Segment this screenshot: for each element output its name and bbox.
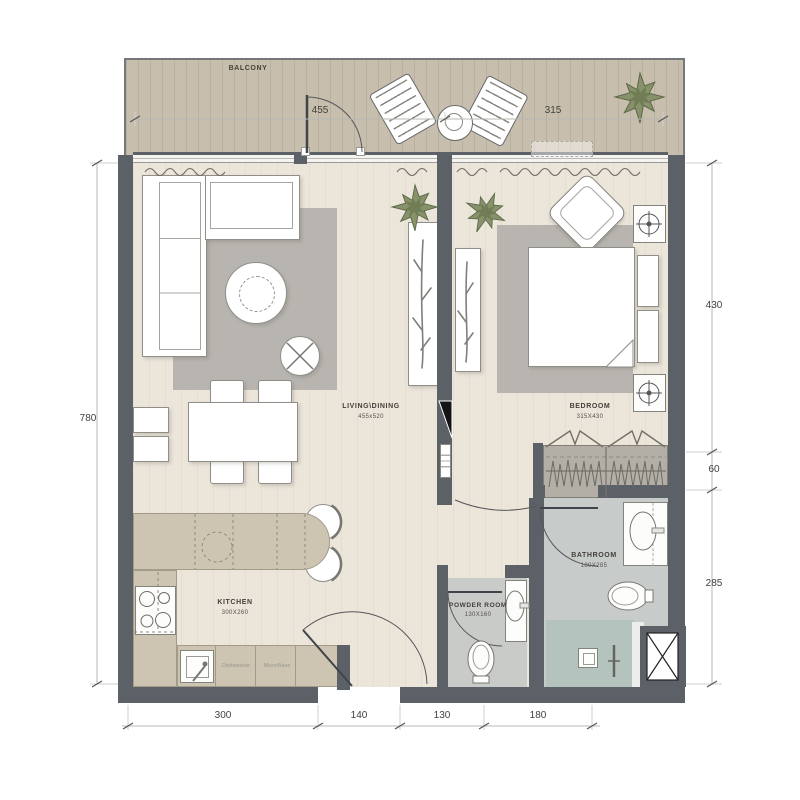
room-size: 455x520 bbox=[321, 413, 421, 422]
balcony-table bbox=[437, 105, 473, 141]
dim-bottom-300: 300 bbox=[203, 710, 243, 721]
dim-left-780: 780 bbox=[68, 413, 108, 424]
room-size: 300X260 bbox=[185, 609, 285, 618]
wall-right bbox=[668, 155, 685, 703]
microwave-label: MicroWave bbox=[247, 663, 307, 669]
powder-west-wall bbox=[437, 565, 448, 687]
bed bbox=[528, 247, 635, 367]
dim-bottom-180: 180 bbox=[518, 710, 558, 721]
wall-bottom-right bbox=[400, 687, 685, 703]
wall-bottom-left bbox=[118, 687, 318, 703]
room-size: 315X430 bbox=[540, 413, 640, 422]
room-name: POWDER ROOM bbox=[428, 601, 528, 611]
room-name: LIVING\DINING bbox=[321, 402, 421, 413]
kitchen-label: KITCHEN 300X260 bbox=[185, 598, 285, 618]
living-dining-label: LIVING\DINING 455x520 bbox=[321, 402, 421, 422]
entry-jamb-stub bbox=[337, 645, 350, 690]
bathroom-label: BATHROOM 180X285 bbox=[544, 551, 644, 571]
powder-north-wall bbox=[505, 565, 529, 578]
sofa-vertical bbox=[142, 175, 207, 357]
balcony-label: BALCONY bbox=[208, 64, 288, 75]
balcony-table-inner bbox=[445, 113, 463, 131]
shower-drain bbox=[578, 648, 598, 668]
dining-chair bbox=[210, 380, 244, 404]
ac-unit-dashed-box bbox=[531, 141, 593, 157]
floor-plan: BALCONY Dishwasher MicroWave bbox=[0, 0, 800, 800]
dim-right-285: 285 bbox=[694, 578, 734, 589]
pillow bbox=[637, 255, 659, 307]
dining-side-chair bbox=[133, 436, 169, 462]
dining-chair bbox=[258, 380, 292, 404]
cooktop bbox=[135, 586, 176, 635]
sofa-chaise bbox=[205, 175, 300, 240]
bedroom-label: BEDROOM 315X430 bbox=[540, 402, 640, 422]
dining-chair bbox=[210, 460, 244, 484]
dim-bottom-140: 140 bbox=[339, 710, 379, 721]
powder-room-label: POWDER ROOM 130X160 bbox=[428, 601, 528, 620]
door-sill bbox=[356, 147, 365, 156]
wall-left bbox=[118, 155, 133, 703]
dining-table bbox=[188, 402, 298, 462]
dim-top-455: 455 bbox=[300, 105, 340, 116]
room-size: 130X160 bbox=[428, 611, 528, 620]
dim-bottom-130: 130 bbox=[422, 710, 462, 721]
bathroom-west-wall bbox=[529, 498, 544, 687]
bathroom-north-wall bbox=[533, 485, 545, 498]
bathroom-north-wall bbox=[598, 485, 668, 498]
room-name: BATHROOM bbox=[544, 551, 644, 562]
sofa-cushion bbox=[210, 182, 293, 229]
dining-side-chair bbox=[133, 407, 169, 433]
nightstand bbox=[633, 205, 666, 243]
coffee-table bbox=[225, 262, 287, 324]
tv-unit-bedroom bbox=[455, 248, 481, 372]
dim-right-430: 430 bbox=[694, 300, 734, 311]
room-size: 180X285 bbox=[544, 562, 644, 571]
room-name: KITCHEN bbox=[185, 598, 285, 609]
side-table bbox=[280, 336, 320, 376]
tv-unit-living bbox=[408, 222, 438, 386]
pillow bbox=[637, 310, 659, 363]
window-post bbox=[437, 152, 452, 163]
dining-chair bbox=[258, 460, 292, 484]
wall-niche-unit bbox=[440, 444, 451, 478]
sofa-cushions bbox=[159, 182, 201, 350]
coffee-table-inner bbox=[239, 276, 275, 312]
kitchen-peninsula-counter bbox=[133, 513, 330, 570]
drain-grate bbox=[583, 653, 595, 665]
door-sill bbox=[301, 147, 310, 156]
room-name: BEDROOM bbox=[540, 402, 640, 413]
dim-right-60: 60 bbox=[694, 464, 734, 475]
dim-top-315: 315 bbox=[533, 105, 573, 116]
